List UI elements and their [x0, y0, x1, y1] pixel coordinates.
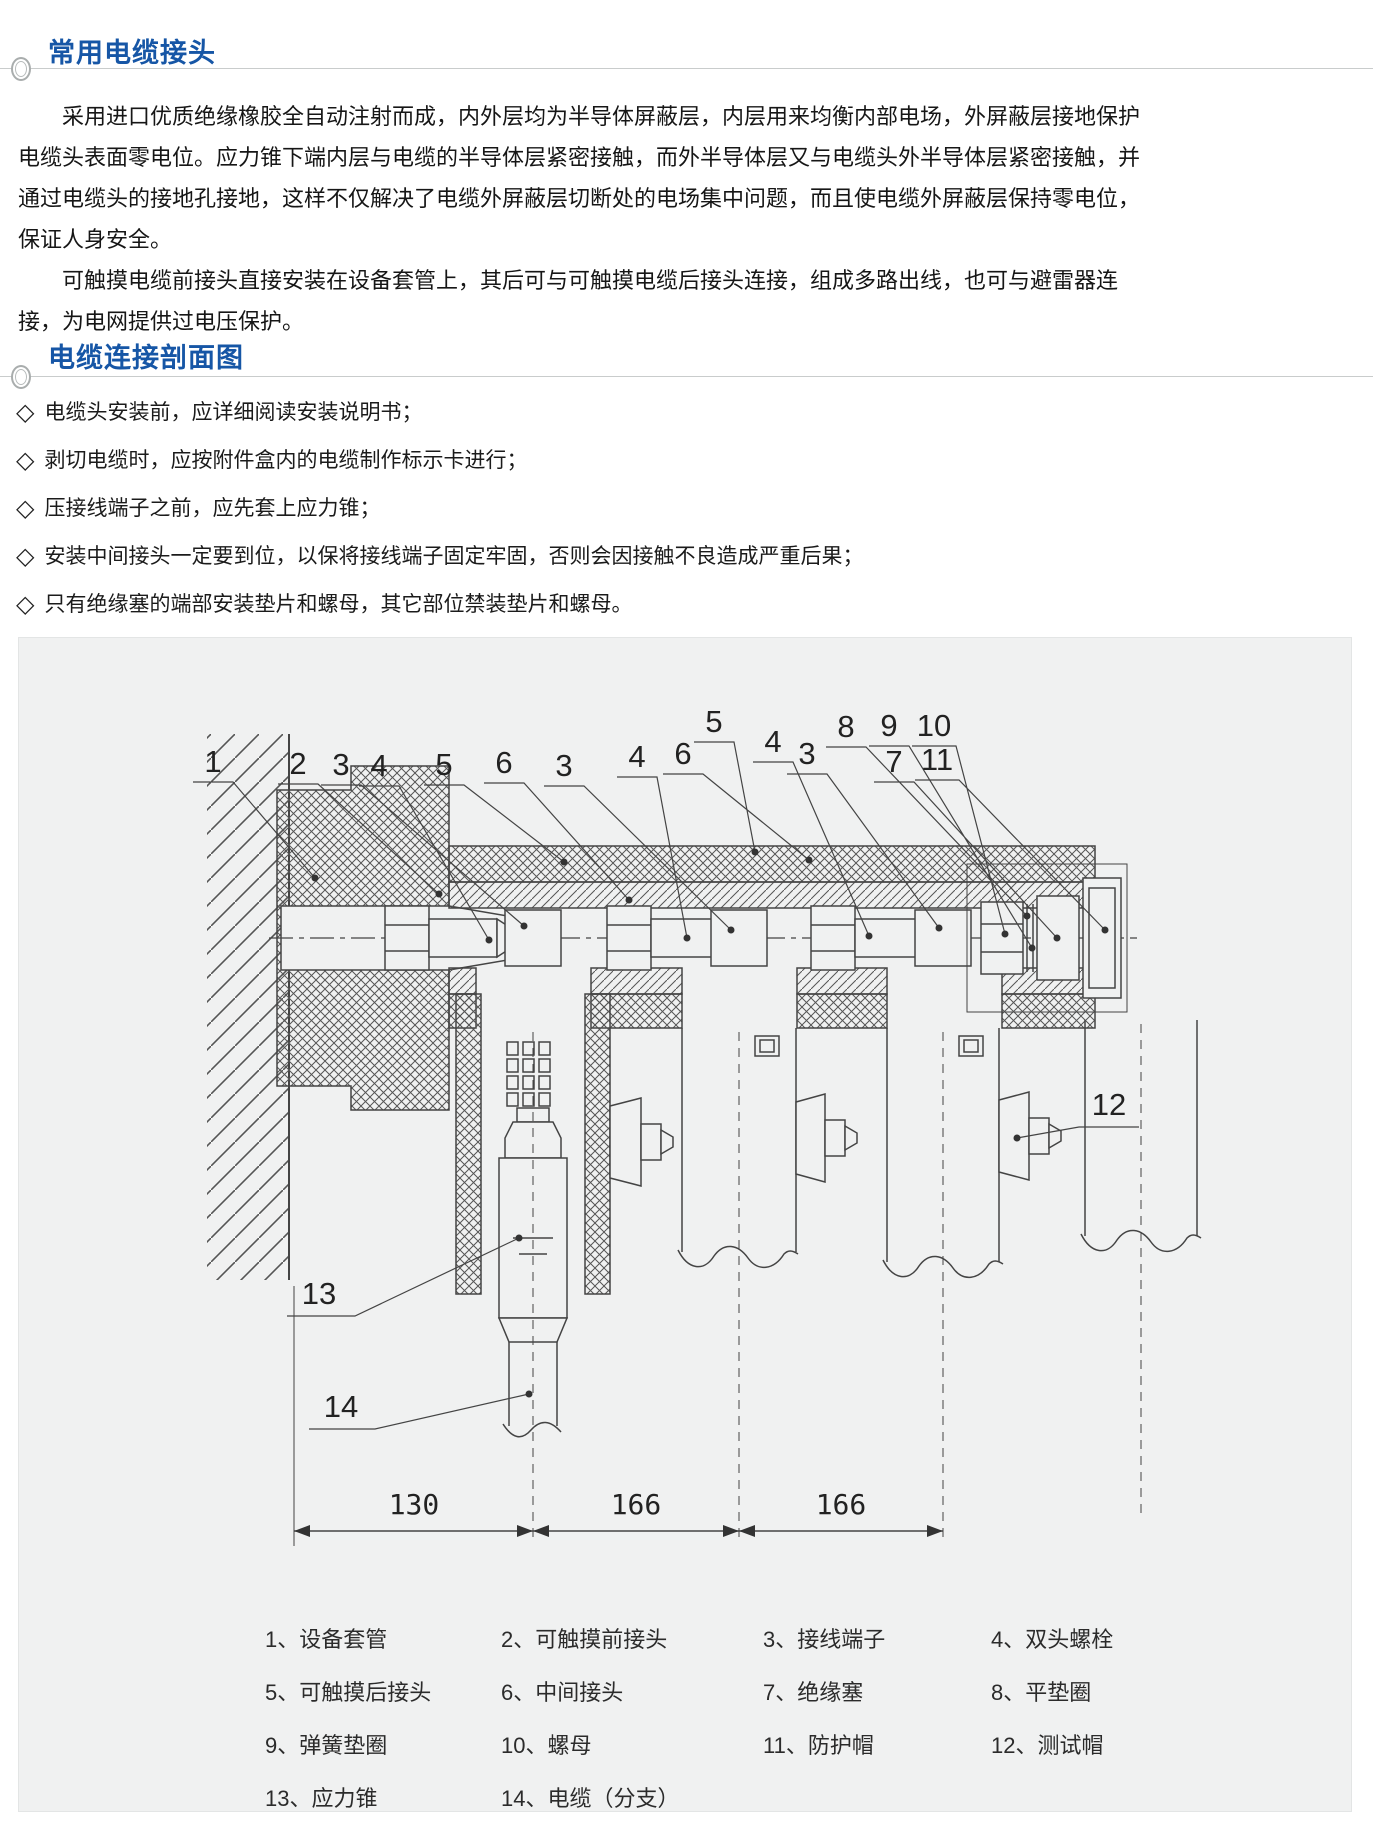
legend-item: 6、中间接头	[501, 1666, 763, 1719]
callout-label: 10	[917, 708, 951, 743]
list-item: ◇ 电缆头安装前，应详细阅读安装说明书；	[16, 398, 1216, 446]
callout-label: 5	[435, 747, 452, 782]
callout-label: 1	[204, 744, 221, 779]
diamond-bullet-icon: ◇	[16, 542, 34, 572]
legend-item: 12、测试帽	[991, 1719, 1291, 1772]
dimension-values: 130 166 166	[389, 1488, 867, 1521]
note-text: 电缆头安装前，应详细阅读安装说明书；	[44, 398, 422, 428]
dimension-label: 166	[816, 1488, 867, 1521]
callout-label: 5	[705, 704, 722, 739]
intro-text: 采用进口优质绝缘橡胶全自动注射而成，内外层均为半导体屏蔽层，内层用来均衡内部电场…	[18, 96, 1156, 342]
callout-label: 8	[837, 709, 854, 744]
callout-label: 6	[674, 736, 691, 771]
legend-item: 9、弹簧垫圈	[265, 1719, 501, 1772]
callout-label-stress-cone: 13	[302, 1276, 336, 1311]
branch-cable-2	[678, 1028, 857, 1544]
note-text: 安装中间接头一定要到位，以保将接线端子固定牢固，否则会因接触不良造成严重后果；	[44, 542, 863, 572]
dimension-label: 166	[611, 1488, 662, 1521]
dimension-label: 130	[389, 1488, 440, 1521]
callout-label: 6	[495, 745, 512, 780]
callout-label: 7	[885, 744, 902, 779]
callout-label: 3	[332, 747, 349, 782]
intro-paragraph-1: 采用进口优质绝缘橡胶全自动注射而成，内外层均为半导体屏蔽层，内层用来均衡内部电场…	[18, 96, 1156, 260]
callout-label: 4	[370, 748, 387, 783]
callout-label: 11	[921, 742, 953, 777]
legend-item: 5、可触摸后接头	[265, 1666, 501, 1719]
branch-cable-1	[456, 994, 673, 1544]
callout-label: 4	[628, 739, 645, 774]
diamond-bullet-icon: ◇	[16, 398, 34, 428]
list-item: ◇ 安装中间接头一定要到位，以保将接线端子固定牢固，否则会因接触不良造成严重后果…	[16, 542, 1216, 590]
note-text: 剥切电缆时，应按附件盒内的电缆制作标示卡进行；	[44, 446, 527, 476]
legend-item: 4、双头螺栓	[991, 1613, 1291, 1666]
section-ring-icon	[11, 365, 31, 389]
section-ring-icon	[11, 57, 31, 81]
legend-item: 3、接线端子	[763, 1613, 991, 1666]
callout-label-cable: 14	[324, 1389, 358, 1424]
intro-paragraph-2: 可触摸电缆前接头直接安装在设备套管上，其后可与可触摸电缆后接头连接，组成多路出线…	[18, 260, 1156, 342]
section-divider-line	[0, 376, 1373, 377]
legend-item: 13、应力锥	[265, 1772, 501, 1825]
diamond-bullet-icon: ◇	[16, 494, 34, 524]
legend-item: 14、电缆（分支）	[501, 1772, 763, 1825]
callout-label-test-cap: 12	[1092, 1087, 1126, 1122]
note-text: 压接线端子之前，应先套上应力锥；	[44, 494, 380, 524]
section-divider-line	[0, 68, 1373, 69]
list-item: ◇ 只有绝缘塞的端部安装垫片和螺母，其它部位禁装垫片和螺母。	[16, 590, 1216, 638]
callout-label: 2	[289, 746, 306, 781]
callout-label: 3	[798, 736, 815, 771]
list-item: ◇ 压接线端子之前，应先套上应力锥；	[16, 494, 1216, 542]
note-text: 只有绝缘塞的端部安装垫片和螺母，其它部位禁装垫片和螺母。	[44, 590, 632, 620]
diagram-panel: 1 2 3 4 5 6 3 4 6 5 4 3 8 9 10 7 11 13 1…	[18, 637, 1352, 1812]
list-item: ◇ 剥切电缆时，应按附件盒内的电缆制作标示卡进行；	[16, 446, 1216, 494]
section-title-common-cable-joints: 常用电缆接头	[48, 31, 216, 70]
section-title-cable-section-view: 电缆连接剖面图	[48, 336, 244, 375]
legend-item: 8、平垫圈	[991, 1666, 1291, 1719]
legend-item: 11、防护帽	[763, 1719, 991, 1772]
branch-cable-3	[883, 1028, 1061, 1544]
callout-label: 9	[880, 708, 897, 743]
installation-notes-list: ◇ 电缆头安装前，应详细阅读安装说明书； ◇ 剥切电缆时，应按附件盒内的电缆制作…	[16, 398, 1216, 638]
diamond-bullet-icon: ◇	[16, 446, 34, 476]
callout-label: 4	[764, 724, 781, 759]
diamond-bullet-icon: ◇	[16, 590, 34, 620]
cable-cross-section-diagram: 1 2 3 4 5 6 3 4 6 5 4 3 8 9 10 7 11 13 1…	[19, 638, 1353, 1578]
legend-item: 1、设备套管	[265, 1613, 501, 1666]
legend-item: 2、可触摸前接头	[501, 1613, 763, 1666]
diagram-legend: 1、设备套管 2、可触摸前接头 3、接线端子 4、双头螺栓 5、可触摸后接头 6…	[265, 1613, 1291, 1825]
legend-item: 10、螺母	[501, 1719, 763, 1772]
callout-label: 3	[555, 748, 572, 783]
legend-item: 7、绝缘塞	[763, 1666, 991, 1719]
